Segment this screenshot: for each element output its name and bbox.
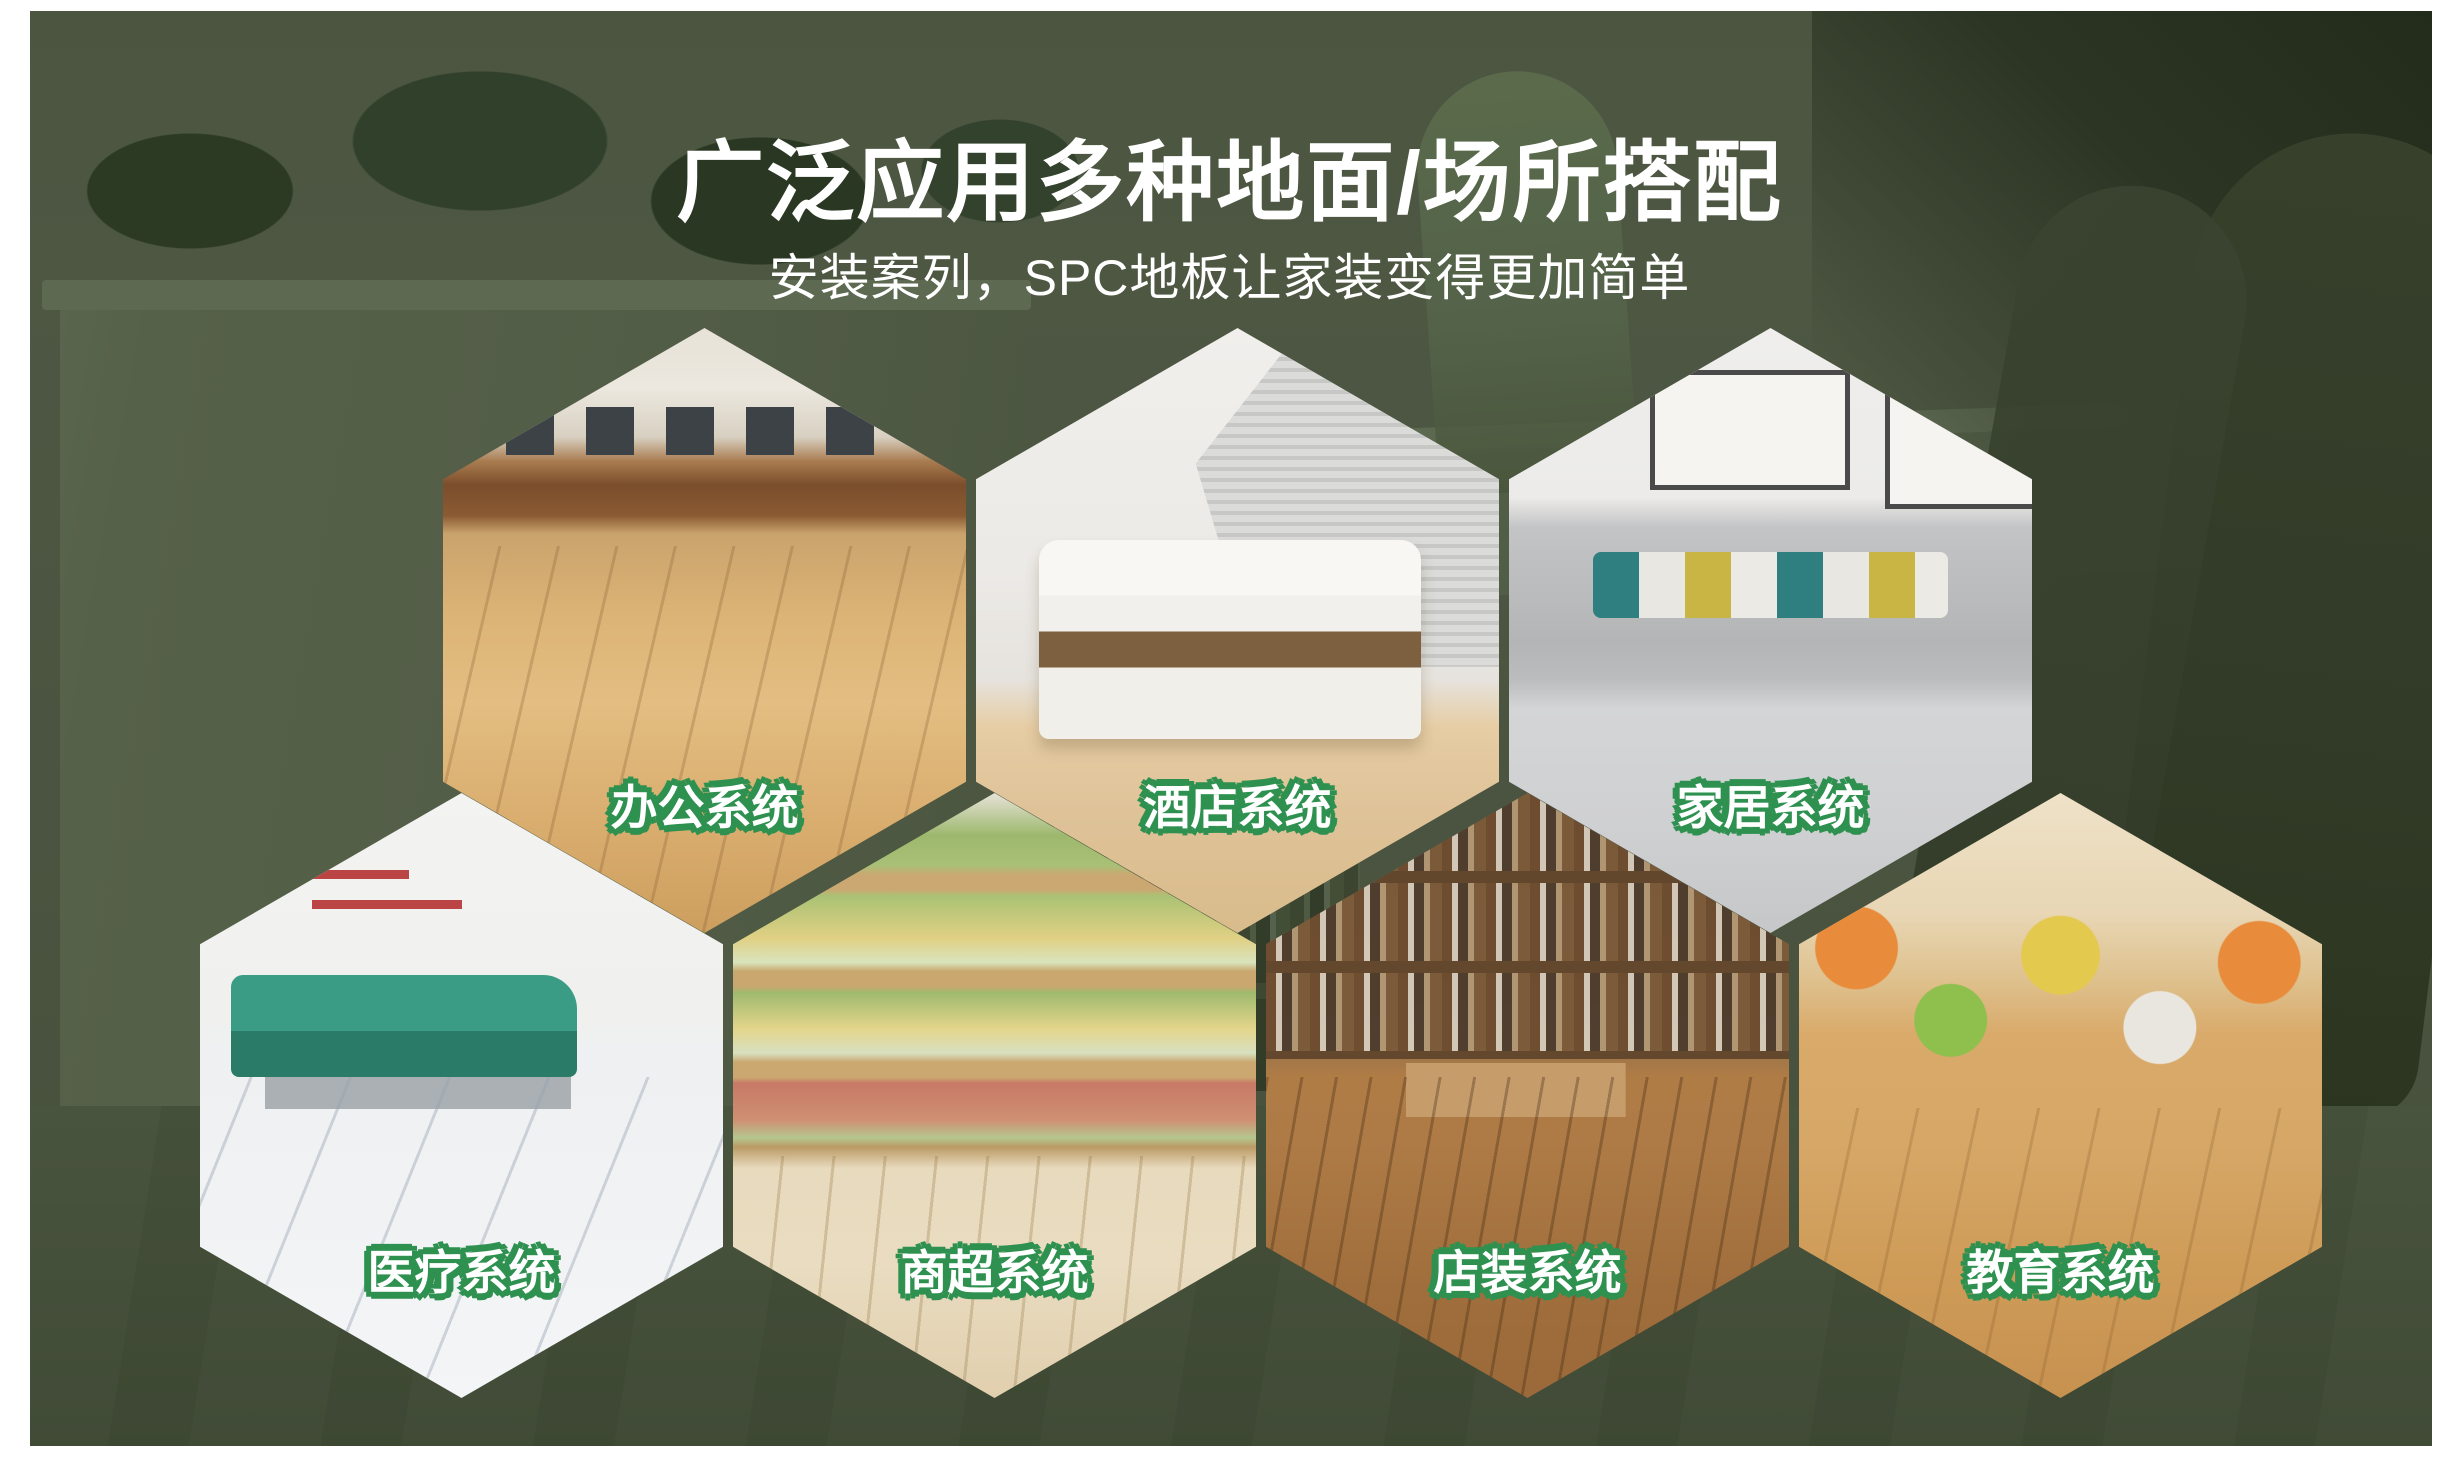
headline: 广泛应用多种地面/场所搭配 [0, 112, 2459, 239]
promo-banner-page: 广泛应用多种地面/场所搭配 安装案列，SPC地板让家装变得更加简单 办公系统 酒… [0, 0, 2459, 1478]
subheadline: 安装案列，SPC地板让家装变得更加简单 [0, 238, 2459, 310]
